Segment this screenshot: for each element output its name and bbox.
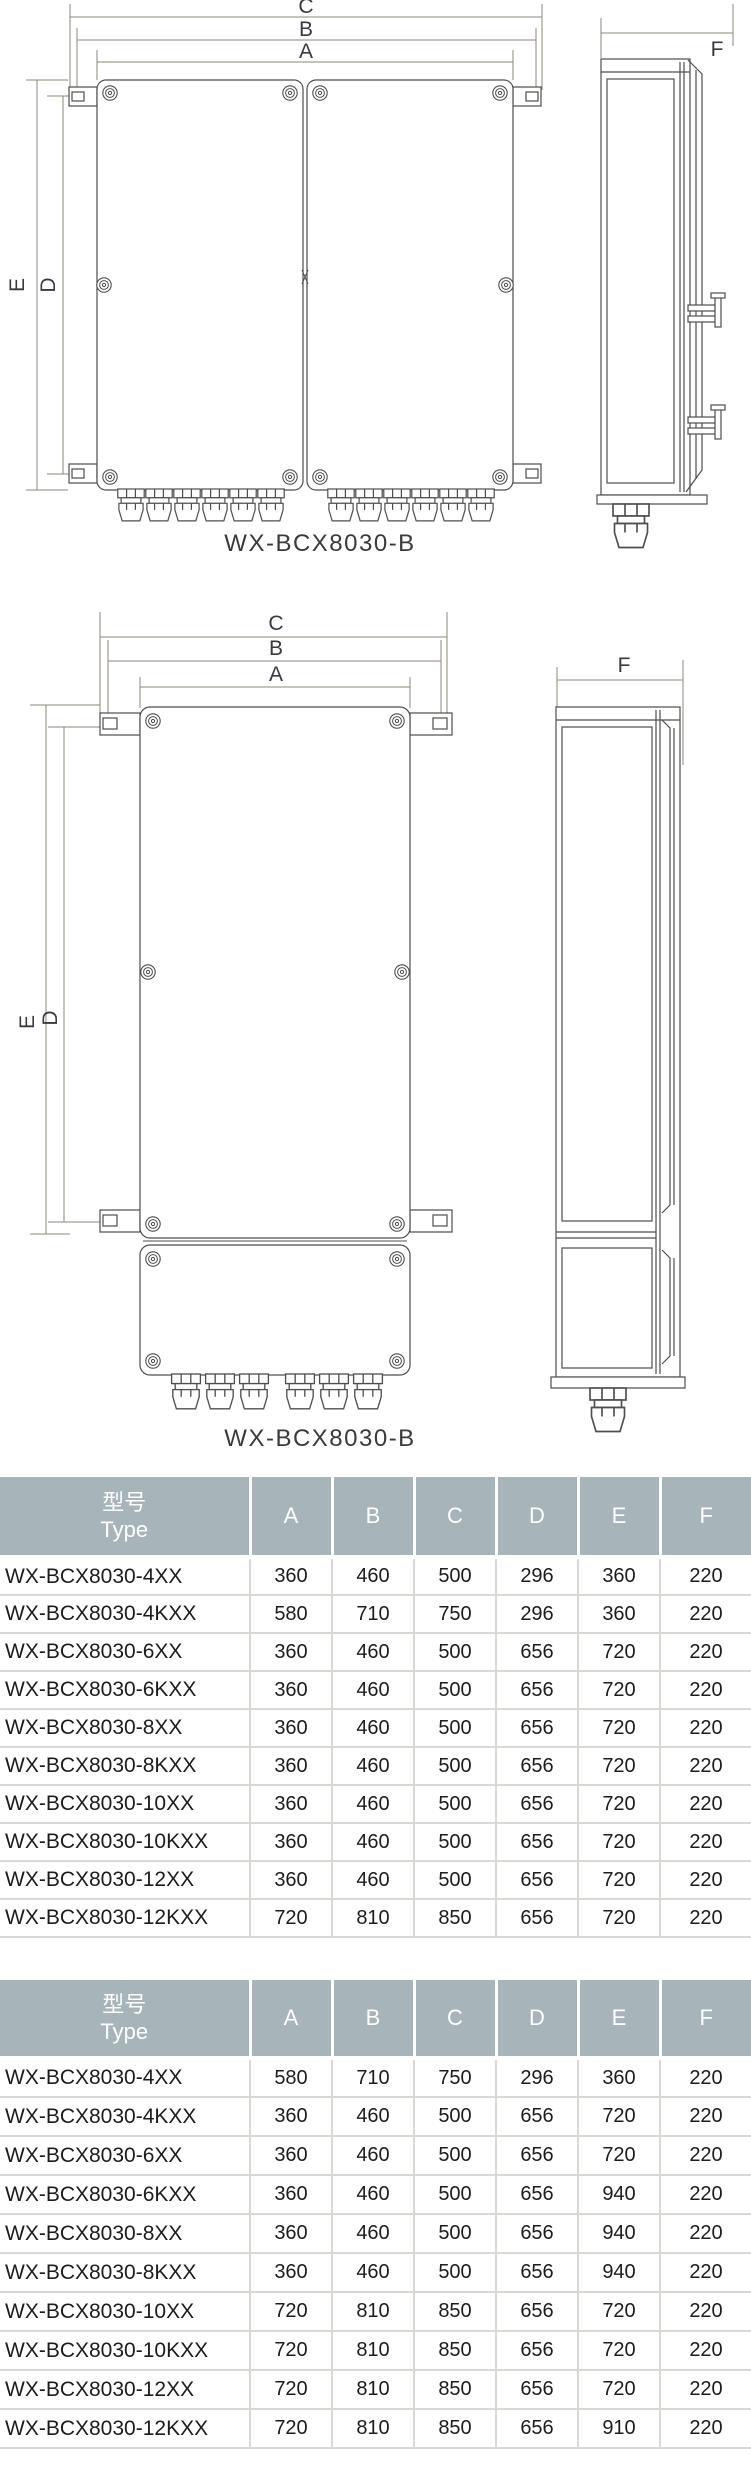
dimension-value-cell: 500 (414, 2136, 496, 2175)
dimension-value-cell: 360 (250, 2175, 332, 2214)
dimension-value-cell: 296 (496, 2058, 578, 2097)
door-latch-top (688, 293, 725, 327)
column-header-b: B (332, 1477, 414, 1557)
dimension-value-cell: 656 (496, 2136, 578, 2175)
dimension-value-cell: 360 (250, 1861, 332, 1899)
dimension-value-cell: 656 (496, 1671, 578, 1709)
dimension-value-cell: 500 (414, 1633, 496, 1671)
dim-label-a: A (299, 40, 313, 63)
model-type-cell: WX-BCX8030-4KXX (0, 2097, 250, 2136)
dimension-value-cell: 720 (250, 2331, 332, 2370)
dimension-value-cell: 656 (496, 2292, 578, 2331)
column-header-a: A (250, 1980, 332, 2058)
dimension-value-cell: 720 (578, 1861, 660, 1899)
model-type-cell: WX-BCX8030-6XX (0, 2136, 250, 2175)
front-view-cable-glands (118, 489, 494, 521)
table-header-row: 型号 Type A B C D E F (0, 1477, 751, 1557)
dimension-value-cell: 910 (578, 2409, 660, 2448)
dimension-value-cell: 360 (250, 1671, 332, 1709)
model-type-cell: WX-BCX8030-4XX (0, 2058, 250, 2097)
dimension-value-cell: 940 (578, 2175, 660, 2214)
dimension-value-cell: 656 (496, 2331, 578, 2370)
dimension-value-cell: 460 (332, 1785, 414, 1823)
spec-row: WX-BCX8030-12XX720810850656720220 (0, 2370, 751, 2409)
dimension-value-cell: 500 (414, 1709, 496, 1747)
dimension-value-cell: 656 (496, 2214, 578, 2253)
dimension-value-cell: 220 (660, 1747, 751, 1785)
dim-label-f: F (618, 654, 631, 677)
dimension-value-cell: 720 (578, 2292, 660, 2331)
dimension-value-cell: 220 (660, 1823, 751, 1861)
dimension-value-cell: 720 (250, 2409, 332, 2448)
dimension-value-cell: 580 (250, 1595, 332, 1633)
dimension-value-cell: 720 (578, 1747, 660, 1785)
spec-row: WX-BCX8030-12KXX720810850656910220 (0, 2409, 751, 2448)
dimension-value-cell: 500 (414, 1671, 496, 1709)
dim-label-d: D (39, 1010, 62, 1025)
dimension-value-cell: 656 (496, 2409, 578, 2448)
spec-row: WX-BCX8030-4KXX580710750296360220 (0, 1595, 751, 1633)
spec-row: WX-BCX8030-10KXX720810850656720220 (0, 2331, 751, 2370)
dim-label-c: C (298, 0, 313, 18)
column-header-c: C (414, 1477, 496, 1557)
dim-label-c: C (268, 612, 283, 635)
model-type-cell: WX-BCX8030-8KXX (0, 2253, 250, 2292)
dimension-value-cell: 360 (250, 2136, 332, 2175)
dim-label-f: F (711, 38, 724, 61)
spec-row: WX-BCX8030-6KXX360460500656940220 (0, 2175, 751, 2214)
model-type-cell: WX-BCX8030-10KXX (0, 2331, 250, 2370)
dimension-value-cell: 220 (660, 1899, 751, 1937)
dimension-value-cell: 220 (660, 1671, 751, 1709)
spec-row: WX-BCX8030-8XX360460500656720220 (0, 1709, 751, 1747)
dimension-value-cell: 296 (496, 1557, 578, 1595)
base-flange (551, 1377, 685, 1388)
left-door-panel (97, 80, 303, 490)
type-header-en: Type (0, 2018, 249, 2046)
side-view (597, 59, 725, 504)
dimension-value-cell: 460 (332, 1861, 414, 1899)
dimension-value-cell: 750 (414, 1595, 496, 1633)
model-type-cell: WX-BCX8030-8XX (0, 1709, 250, 1747)
dimension-value-cell: 720 (578, 1671, 660, 1709)
dimension-value-cell: 360 (250, 1747, 332, 1785)
spec-row: WX-BCX8030-6KXX360460500656720220 (0, 1671, 751, 1709)
door-panel (140, 707, 410, 1238)
dimension-value-cell: 360 (578, 2058, 660, 2097)
dimension-value-cell: 940 (578, 2253, 660, 2292)
right-door-panel (307, 80, 513, 490)
dim-label-e: E (6, 278, 29, 292)
model-type-cell: WX-BCX8030-4KXX (0, 1595, 250, 1633)
dimension-value-cell: 360 (250, 1823, 332, 1861)
dimension-value-cell: 500 (414, 1557, 496, 1595)
dimension-value-cell: 460 (332, 1823, 414, 1861)
dimension-value-cell: 220 (660, 2370, 751, 2409)
dimension-value-cell: 656 (496, 1823, 578, 1861)
dimension-value-cell: 460 (332, 1709, 414, 1747)
dimension-value-cell: 296 (496, 1595, 578, 1633)
dimension-value-cell: 220 (660, 2253, 751, 2292)
type-header-zh: 型号 (0, 1489, 249, 1517)
dimension-value-cell: 656 (496, 1633, 578, 1671)
spec-row: WX-BCX8030-6XX360460500656720220 (0, 2136, 751, 2175)
dimension-value-cell: 720 (578, 1709, 660, 1747)
dimension-value-cell: 720 (578, 1633, 660, 1671)
spec-row: WX-BCX8030-10XX360460500656720220 (0, 1785, 751, 1823)
model-type-cell: WX-BCX8030-12KXX (0, 1899, 250, 1937)
dimension-value-cell: 500 (414, 2097, 496, 2136)
front-view (100, 707, 452, 1375)
dimension-value-cell: 656 (496, 1899, 578, 1937)
dimension-value-cell: 460 (332, 1747, 414, 1785)
dimension-value-cell: 460 (332, 2214, 414, 2253)
dimension-value-cell: 500 (414, 2253, 496, 2292)
dimension-value-cell: 656 (496, 1709, 578, 1747)
dimension-value-cell: 360 (250, 1557, 332, 1595)
dimension-value-cell: 460 (332, 2136, 414, 2175)
dimension-value-cell: 850 (414, 2331, 496, 2370)
base-flange (597, 495, 707, 504)
model-type-cell: WX-BCX8030-10KXX (0, 1823, 250, 1861)
dimension-value-cell: 656 (496, 2175, 578, 2214)
side-cable-gland (613, 504, 649, 548)
dimension-value-cell: 220 (660, 1557, 751, 1595)
type-column-header: 型号 Type (0, 1477, 250, 1557)
dimension-value-cell: 810 (332, 1899, 414, 1937)
dimension-value-cell: 850 (414, 2292, 496, 2331)
enclosure-catalog-page: C B A E D F (0, 0, 751, 2477)
dimension-value-cell: 720 (578, 1785, 660, 1823)
dimension-value-cell: 460 (332, 2097, 414, 2136)
model-type-cell: WX-BCX8030-4XX (0, 1557, 250, 1595)
model-type-cell: WX-BCX8030-10XX (0, 1785, 250, 1823)
dimension-value-cell: 720 (578, 2097, 660, 2136)
dimension-value-cell: 220 (660, 2331, 751, 2370)
dimension-value-cell: 940 (578, 2214, 660, 2253)
dimension-value-cell: 220 (660, 2058, 751, 2097)
dimension-value-cell: 720 (578, 1899, 660, 1937)
type-header-zh: 型号 (0, 1991, 249, 2019)
spec-row: WX-BCX8030-8KXX360460500656720220 (0, 1747, 751, 1785)
dimension-value-cell: 656 (496, 1861, 578, 1899)
dimension-value-cell: 220 (660, 1633, 751, 1671)
spec-row: WX-BCX8030-4XX580710750296360220 (0, 2058, 751, 2097)
spec-row: WX-BCX8030-8KXX360460500656940220 (0, 2253, 751, 2292)
dimension-value-cell: 500 (414, 1785, 496, 1823)
dimension-value-cell: 850 (414, 1899, 496, 1937)
column-header-f: F (660, 1477, 751, 1557)
dimension-value-cell: 720 (578, 2136, 660, 2175)
dimension-value-cell: 360 (250, 1785, 332, 1823)
door-latch-bottom (688, 405, 725, 439)
dim-label-d: D (37, 277, 60, 292)
dimension-value-cell: 220 (660, 2292, 751, 2331)
dimension-value-cell: 500 (414, 2175, 496, 2214)
dimension-value-cell: 220 (660, 1709, 751, 1747)
dimension-value-cell: 810 (332, 2409, 414, 2448)
dimension-value-cell: 720 (578, 2331, 660, 2370)
dimension-value-cell: 710 (332, 2058, 414, 2097)
side-view (551, 707, 685, 1388)
dimension-value-cell: 656 (496, 1785, 578, 1823)
column-header-e: E (578, 1980, 660, 2058)
dimension-value-cell: 500 (414, 1861, 496, 1899)
dimension-value-cell: 220 (660, 2409, 751, 2448)
dimension-value-cell: 720 (578, 1823, 660, 1861)
dimension-value-cell: 360 (250, 2214, 332, 2253)
dimension-value-cell: 360 (250, 2253, 332, 2292)
dimension-table-1: 型号 Type A B C D E F WX-BCX8030-4XX360460… (0, 1477, 751, 1938)
column-header-f: F (660, 1980, 751, 2058)
dimension-value-cell: 850 (414, 2409, 496, 2448)
model-type-cell: WX-BCX8030-12KXX (0, 2409, 250, 2448)
dimension-value-cell: 220 (660, 2175, 751, 2214)
spec-row: WX-BCX8030-12KXX720810850656720220 (0, 1899, 751, 1937)
dimension-value-cell: 220 (660, 1785, 751, 1823)
model-type-cell: WX-BCX8030-10XX (0, 2292, 250, 2331)
dimension-value-cell: 720 (250, 2370, 332, 2409)
dimension-value-cell: 810 (332, 2331, 414, 2370)
dimension-value-cell: 460 (332, 2253, 414, 2292)
column-header-d: D (496, 1477, 578, 1557)
dimension-value-cell: 360 (578, 1595, 660, 1633)
dimension-value-cell: 656 (496, 1747, 578, 1785)
dimension-value-cell: 220 (660, 1595, 751, 1633)
dimension-value-cell: 850 (414, 2370, 496, 2409)
column-header-a: A (250, 1477, 332, 1557)
dimension-value-cell: 720 (578, 2370, 660, 2409)
spec-row: WX-BCX8030-4XX360460500296360220 (0, 1557, 751, 1595)
dimension-value-cell: 360 (250, 2097, 332, 2136)
dimension-value-cell: 656 (496, 2097, 578, 2136)
dimension-value-cell: 360 (578, 1557, 660, 1595)
front-view (69, 80, 541, 490)
model-type-cell: WX-BCX8030-12XX (0, 1861, 250, 1899)
dimension-value-cell: 460 (332, 1671, 414, 1709)
dimension-value-cell: 720 (250, 1899, 332, 1937)
single-door-box-drawing: C B A E D F (0, 560, 751, 1475)
dimension-value-cell: 656 (496, 2370, 578, 2409)
dim-label-b: B (299, 18, 313, 41)
dimension-value-cell: 710 (332, 1595, 414, 1633)
table-header-row: 型号 Type A B C D E F (0, 1980, 751, 2058)
side-cable-gland (590, 1388, 626, 1432)
dimension-value-cell: 360 (250, 1633, 332, 1671)
dimension-value-cell: 810 (332, 2292, 414, 2331)
column-header-d: D (496, 1980, 578, 2058)
spec-row: WX-BCX8030-12XX360460500656720220 (0, 1861, 751, 1899)
terminal-box (140, 1245, 410, 1375)
model-type-cell: WX-BCX8030-6KXX (0, 1671, 250, 1709)
dimension-value-cell: 220 (660, 2097, 751, 2136)
type-column-header: 型号 Type (0, 1980, 250, 2058)
spec-row: WX-BCX8030-8XX360460500656940220 (0, 2214, 751, 2253)
dimension-value-cell: 500 (414, 1747, 496, 1785)
dim-label-b: B (269, 637, 283, 660)
column-header-c: C (414, 1980, 496, 2058)
dimension-value-cell: 360 (250, 1709, 332, 1747)
drawing2-caption: WX-BCX8030-B (224, 1425, 415, 1452)
front-view-cable-glands (172, 1374, 383, 1409)
dimension-value-cell: 656 (496, 2253, 578, 2292)
dimension-value-cell: 460 (332, 2175, 414, 2214)
dimension-value-cell: 720 (250, 2292, 332, 2331)
dimension-value-cell: 220 (660, 2214, 751, 2253)
model-type-cell: WX-BCX8030-8XX (0, 2214, 250, 2253)
type-header-en: Type (0, 1516, 249, 1544)
dimension-value-cell: 220 (660, 1861, 751, 1899)
spec-row: WX-BCX8030-6XX360460500656720220 (0, 1633, 751, 1671)
dimension-value-cell: 220 (660, 2136, 751, 2175)
model-type-cell: WX-BCX8030-12XX (0, 2370, 250, 2409)
spec-row: WX-BCX8030-10KXX360460500656720220 (0, 1823, 751, 1861)
model-type-cell: WX-BCX8030-6KXX (0, 2175, 250, 2214)
dimension-value-cell: 810 (332, 2370, 414, 2409)
dim-label-e: E (16, 1015, 39, 1029)
dimension-value-cell: 500 (414, 2214, 496, 2253)
spec-row: WX-BCX8030-10XX720810850656720220 (0, 2292, 751, 2331)
dimension-value-cell: 460 (332, 1557, 414, 1595)
dimension-table-2: 型号 Type A B C D E F WX-BCX8030-4XX580710… (0, 1980, 751, 2449)
model-type-cell: WX-BCX8030-6XX (0, 1633, 250, 1671)
double-door-box-drawing: C B A E D F (0, 0, 751, 572)
model-type-cell: WX-BCX8030-8KXX (0, 1747, 250, 1785)
dimension-value-cell: 460 (332, 1633, 414, 1671)
dimension-value-cell: 500 (414, 1823, 496, 1861)
spec-row: WX-BCX8030-4KXX360460500656720220 (0, 2097, 751, 2136)
dimension-value-cell: 750 (414, 2058, 496, 2097)
column-header-e: E (578, 1477, 660, 1557)
dim-label-a: A (269, 663, 283, 686)
column-header-b: B (332, 1980, 414, 2058)
drawing1-caption: WX-BCX8030-B (224, 530, 415, 557)
dimension-value-cell: 580 (250, 2058, 332, 2097)
